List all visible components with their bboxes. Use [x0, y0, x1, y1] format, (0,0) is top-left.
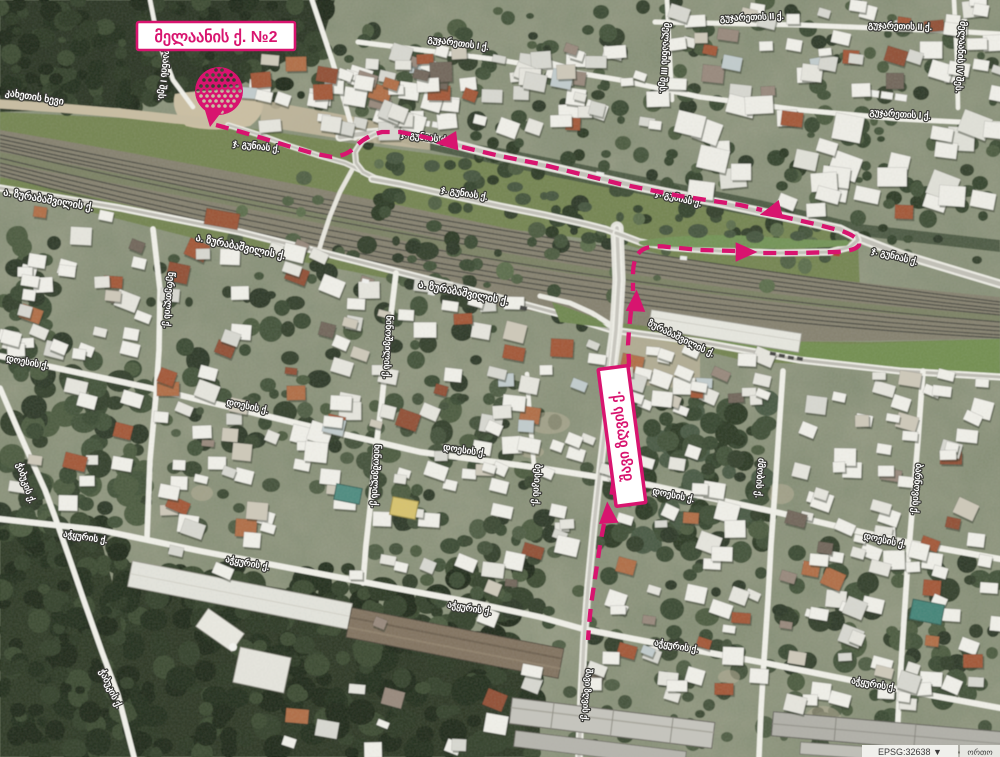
svg-text:EPSG:32638 ▼: EPSG:32638 ▼: [878, 747, 942, 757]
svg-text:ორთო: ორთო: [967, 748, 992, 757]
svg-text:მელაანის ქ. №2: მელაანის ქ. №2: [154, 28, 277, 47]
